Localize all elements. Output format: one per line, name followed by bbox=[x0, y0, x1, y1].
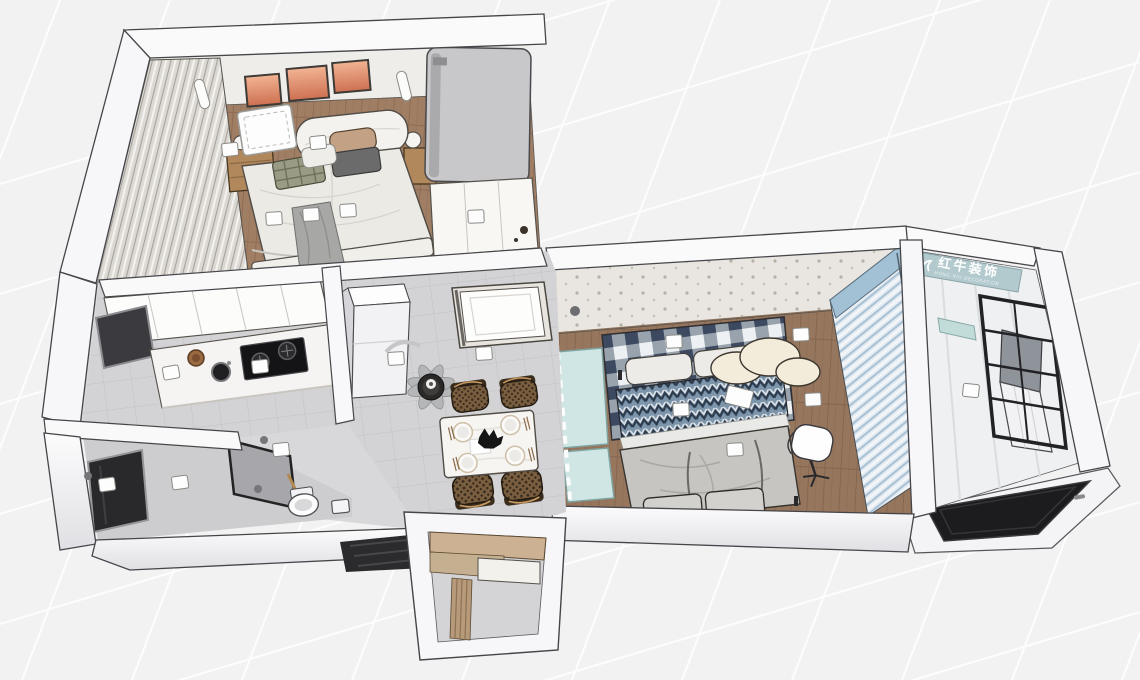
dining-chair[interactable] bbox=[500, 468, 544, 506]
3d-viewport[interactable]: 红牛装饰 HONG NIU DECORATION bbox=[0, 0, 1140, 680]
cutting-board bbox=[188, 350, 204, 366]
light-marker bbox=[303, 207, 320, 221]
dining-chair[interactable] bbox=[450, 379, 490, 414]
room-bedroom-2 bbox=[552, 244, 940, 526]
light-marker bbox=[221, 142, 238, 157]
light-marker bbox=[962, 383, 979, 398]
gray-wardrobe[interactable] bbox=[425, 47, 531, 183]
light-marker bbox=[666, 335, 683, 349]
light-marker bbox=[388, 351, 405, 365]
light-marker bbox=[272, 442, 289, 457]
spec-card bbox=[237, 104, 297, 156]
light-marker bbox=[98, 477, 116, 492]
light-marker bbox=[162, 365, 180, 381]
room-bedroom-1 bbox=[96, 42, 540, 286]
art-panel bbox=[286, 66, 329, 101]
light-marker bbox=[805, 393, 822, 407]
dining-table[interactable] bbox=[440, 410, 539, 478]
light-marker bbox=[171, 475, 189, 490]
entry-counter bbox=[478, 558, 540, 584]
light-marker bbox=[309, 135, 326, 150]
light-marker bbox=[468, 210, 484, 224]
light-marker bbox=[793, 328, 810, 342]
dining-chair[interactable] bbox=[451, 472, 495, 510]
light-marker bbox=[251, 359, 268, 374]
light-marker bbox=[476, 346, 493, 360]
dining-chair[interactable] bbox=[499, 375, 539, 410]
light-marker bbox=[340, 203, 357, 217]
wood-slat-screen bbox=[450, 578, 472, 640]
wash-basin bbox=[331, 499, 349, 514]
light-marker bbox=[727, 443, 744, 457]
light-marker bbox=[673, 403, 690, 417]
kitchen-window bbox=[96, 306, 154, 368]
light-marker bbox=[266, 211, 283, 225]
art-panel bbox=[332, 60, 370, 93]
interior-door[interactable] bbox=[452, 282, 552, 348]
art-panel bbox=[245, 74, 281, 107]
entry-foyer bbox=[404, 512, 566, 660]
mirror-panel bbox=[88, 450, 148, 532]
